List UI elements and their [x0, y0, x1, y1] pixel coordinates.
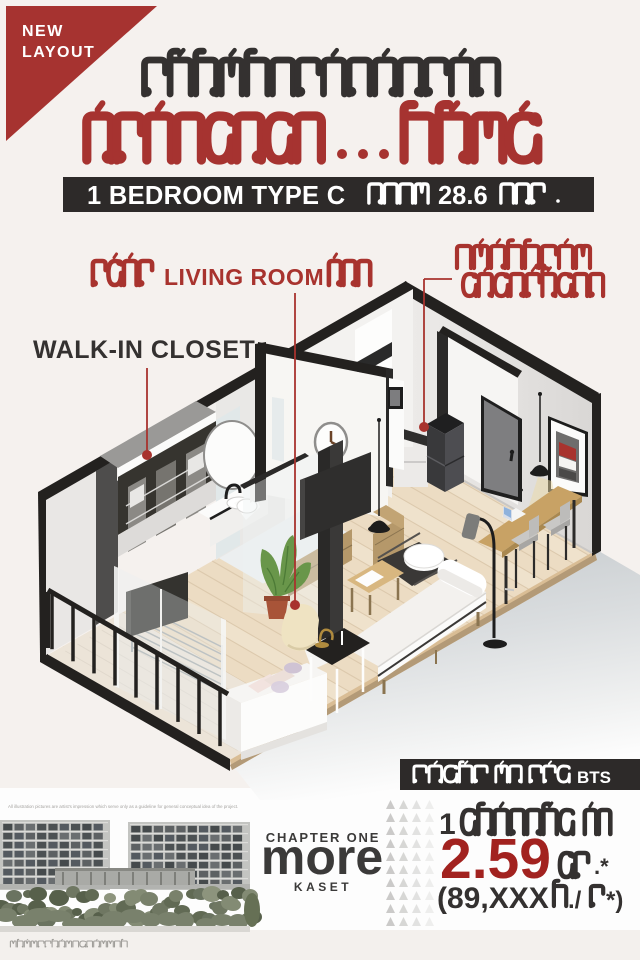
svg-text:KASET: KASET — [294, 880, 352, 894]
svg-text:1 BEDROOM TYPE C: 1 BEDROOM TYPE C — [87, 182, 345, 210]
svg-text:./: ./ — [568, 887, 582, 914]
svg-text:LAYOUT: LAYOUT — [22, 44, 95, 61]
svg-text:LIVING ROOM: LIVING ROOM — [164, 264, 324, 290]
svg-text:All illustration pictures are: All illustration pictures are artist's i… — [8, 804, 238, 809]
svg-text:*): *) — [606, 887, 623, 914]
svg-text:NEW: NEW — [22, 23, 64, 40]
svg-text:WALK-IN CLOSET: WALK-IN CLOSET — [33, 336, 255, 364]
svg-text:more: more — [261, 829, 383, 885]
svg-text:BTS: BTS — [577, 768, 611, 787]
svg-text:(89,XXX: (89,XXX — [437, 882, 549, 915]
svg-text:.*: .* — [594, 854, 609, 879]
svg-text:28.6: 28.6 — [438, 182, 488, 210]
